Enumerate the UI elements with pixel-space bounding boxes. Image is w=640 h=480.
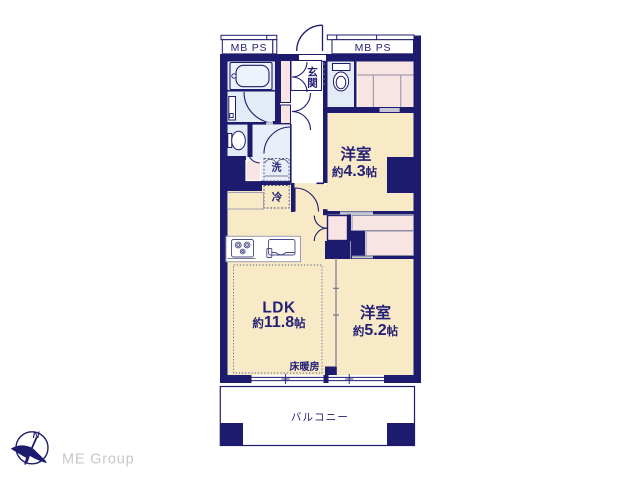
svg-text:洋室: 洋室 [340,145,371,164]
svg-text:バルコニー: バルコニー [291,412,349,424]
svg-text:関: 関 [307,78,318,90]
svg-text:MB PS: MB PS [355,42,392,54]
svg-text:N: N [33,430,41,441]
svg-text:MB PS: MB PS [231,42,268,54]
svg-text:ME Group: ME Group [62,452,134,468]
svg-text:洋室: 洋室 [360,303,391,322]
svg-text:洗: 洗 [272,161,282,174]
svg-text:冷: 冷 [272,191,283,204]
svg-text:床暖房: 床暖房 [290,360,320,373]
